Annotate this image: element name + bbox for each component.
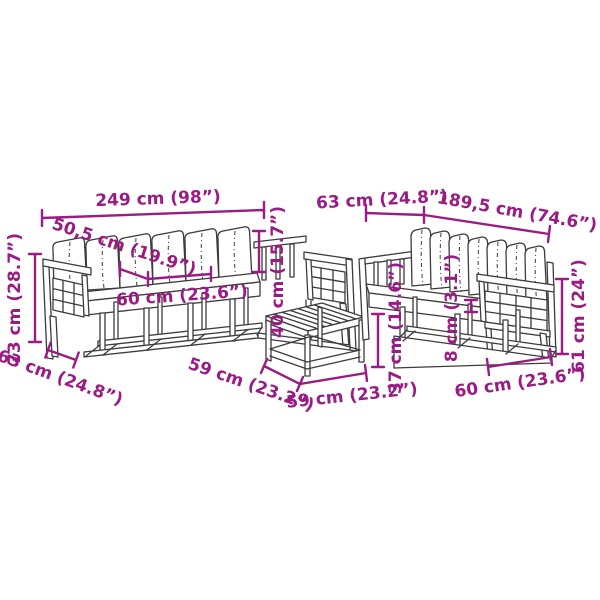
dim-left-overall-height: 73 cm (28.7”) xyxy=(5,233,41,365)
dim-label-table-height: 37 cm (14.6”) xyxy=(386,262,406,394)
product-dimension-diagram: 249 cm (98”) 50,5 cm (19.9”) 60 cm (23.6… xyxy=(0,0,600,600)
dim-right-side-depth: 63 cm (24.8”) xyxy=(316,187,449,223)
dim-label-right-side-depth: 63 cm (24.8”) xyxy=(316,187,449,214)
dim-right-overall-width: 189,5 cm (74.6”) xyxy=(424,188,599,242)
dim-label-right-overall-height: 61 cm (24”) xyxy=(569,259,589,373)
dim-label-left-overall-width: 249 cm (98”) xyxy=(95,187,221,211)
dim-left-backrest-height: 40 cm (15.7”) xyxy=(253,206,288,338)
dim-right-overall-height: 61 cm (24”) xyxy=(556,259,589,373)
dim-label-right-seat-width: 60 cm (23.6”) xyxy=(453,364,586,402)
dim-label-left-overall-height: 73 cm (28.7”) xyxy=(5,233,25,365)
diagram-canvas: 249 cm (98”) 50,5 cm (19.9”) 60 cm (23.6… xyxy=(0,0,600,600)
dim-label-left-backrest-height: 40 cm (15.7”) xyxy=(268,206,288,338)
dim-label-right-cushion-thickness: 8 cm (3.1”) xyxy=(442,254,462,362)
